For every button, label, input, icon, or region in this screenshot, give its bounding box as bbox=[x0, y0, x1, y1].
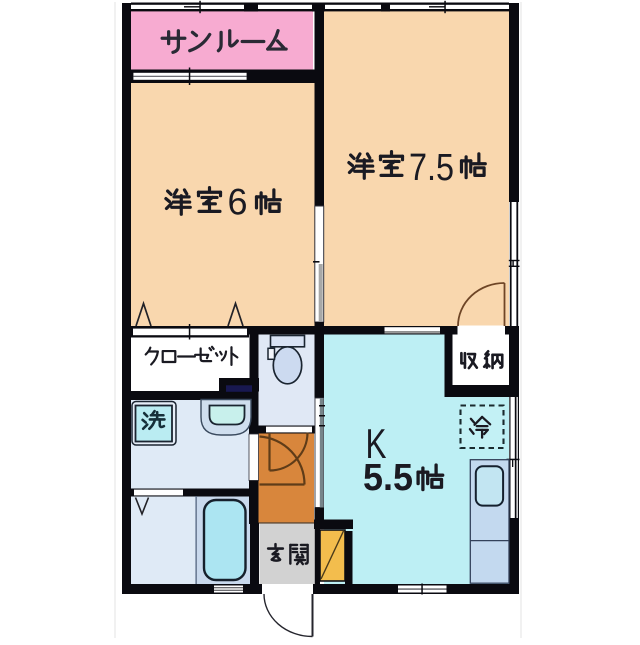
svg-text:6: 6 bbox=[228, 182, 248, 223]
svg-text:5.5: 5.5 bbox=[363, 457, 413, 499]
svg-text:7.5: 7.5 bbox=[409, 147, 454, 189]
